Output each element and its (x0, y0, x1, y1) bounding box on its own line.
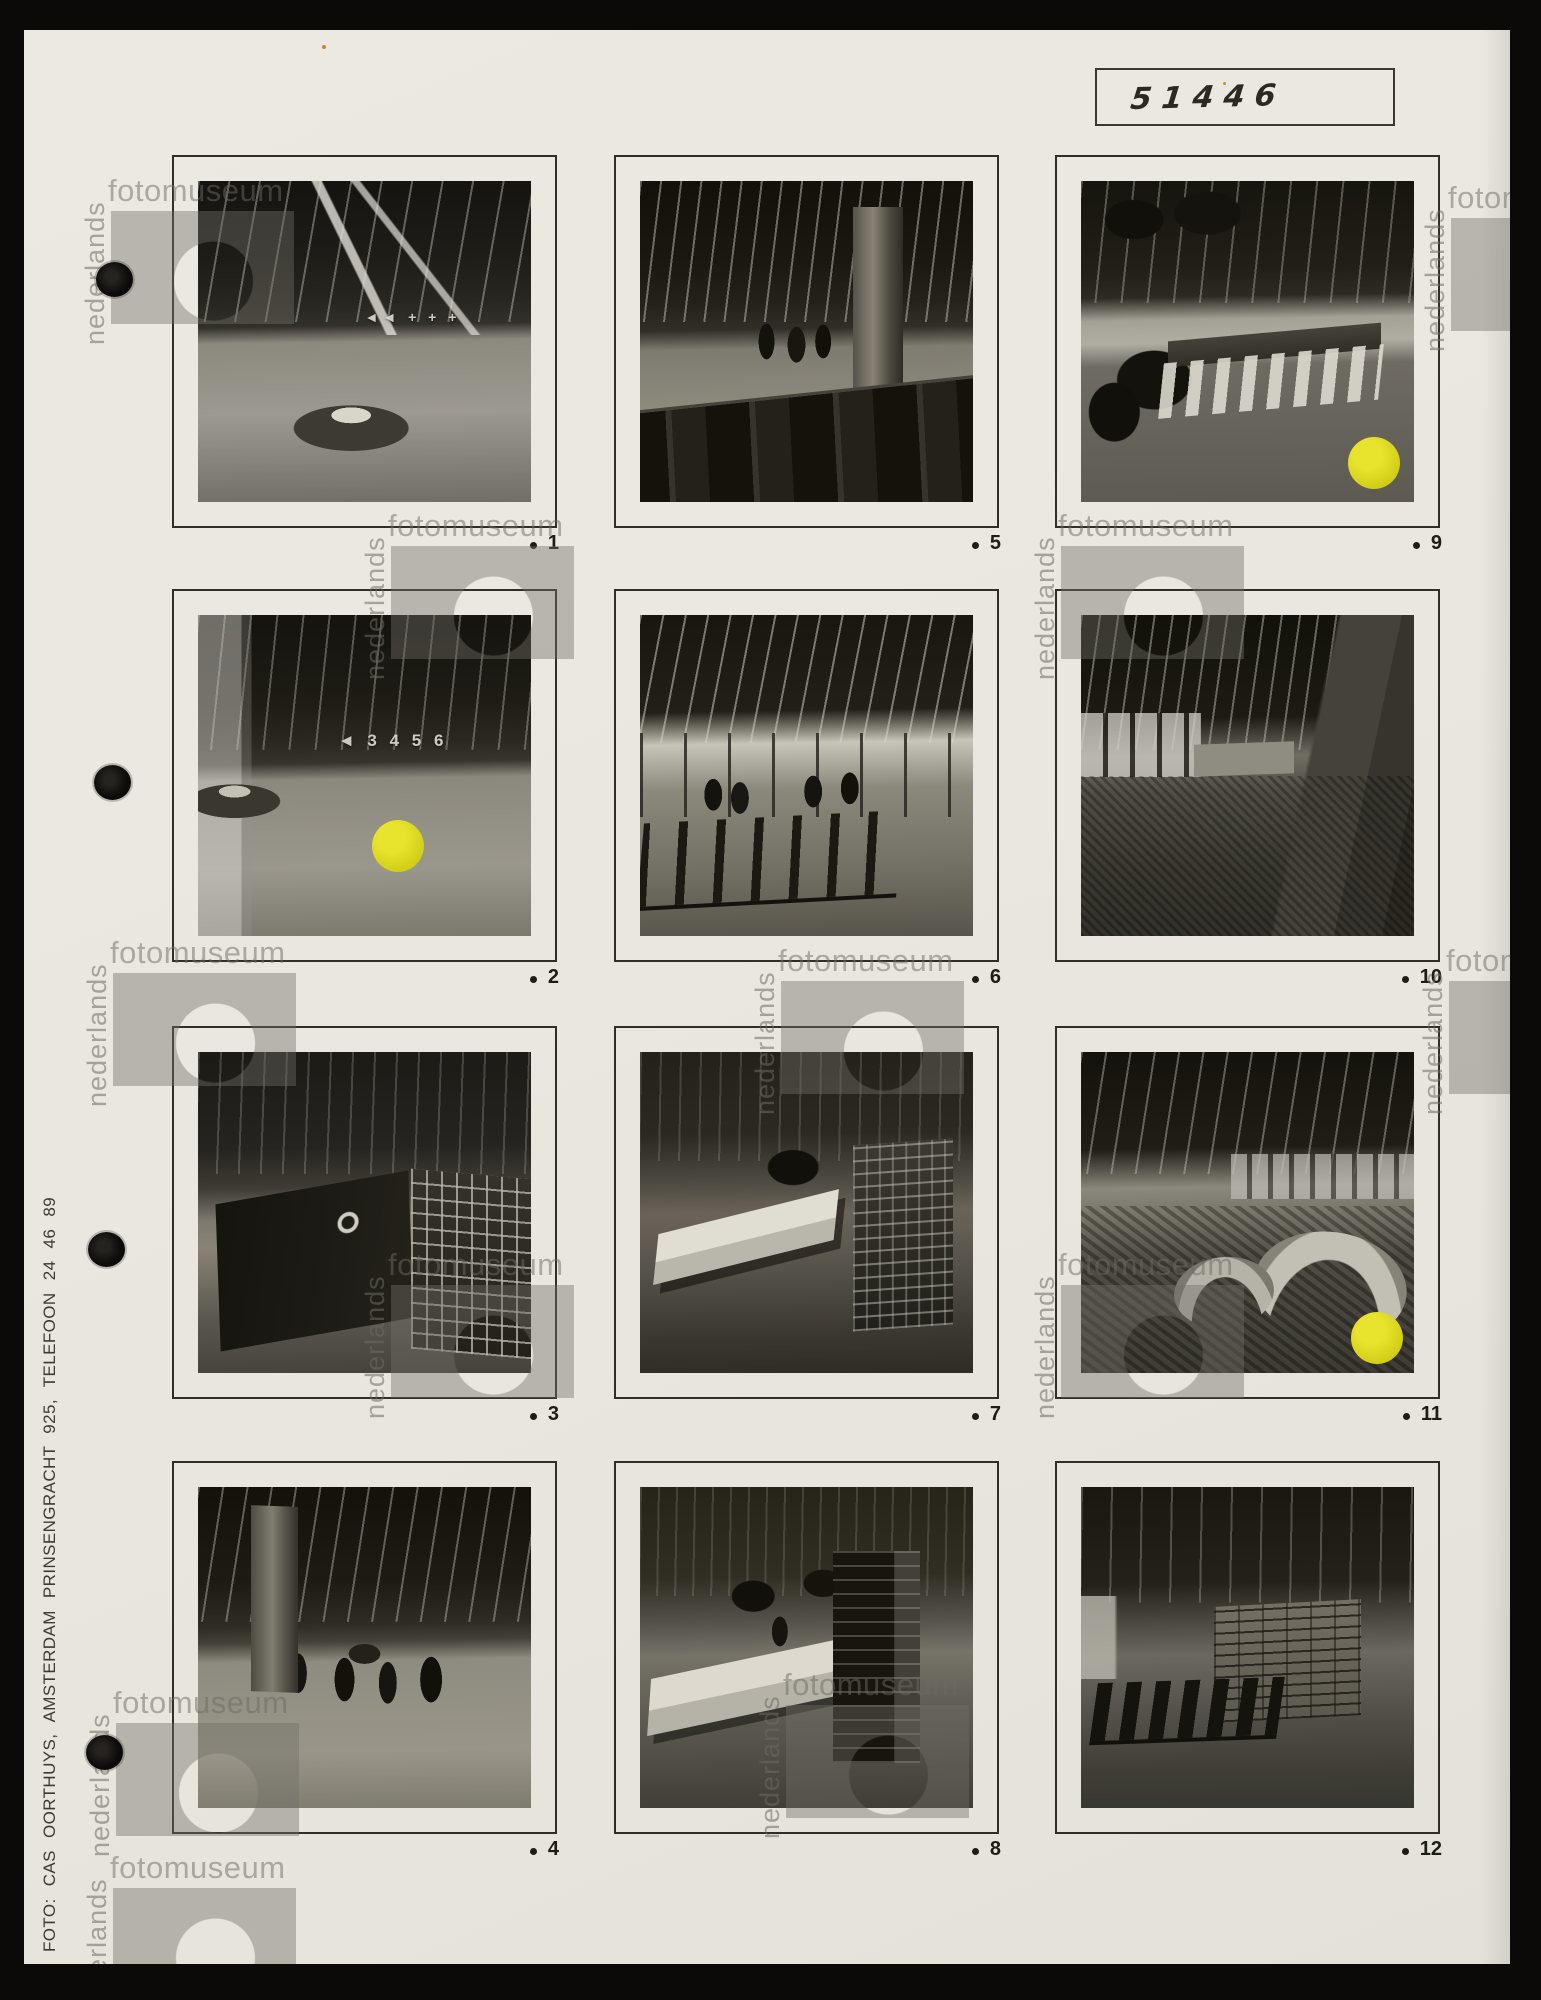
photo-number: 4 (548, 1838, 559, 1861)
photo-scene-shape (833, 1551, 920, 1763)
label-bullet (530, 1848, 537, 1855)
fotomuseum-logo-icon (1451, 218, 1510, 331)
catalog-number-box: 51446 (1095, 68, 1395, 126)
photo-number: 1 (548, 532, 559, 555)
photo-print-11 (1081, 1052, 1414, 1373)
photo-scene-shape (853, 207, 903, 412)
photo-scene-shape (653, 1189, 839, 1285)
photo-frame-11: 11 (1055, 1026, 1440, 1399)
photo-scene-shape (853, 1138, 953, 1331)
photo-number: 12 (1420, 1838, 1442, 1861)
photo-frame-9: 9 (1055, 155, 1440, 528)
photo-number: 2 (548, 966, 559, 989)
photo-number-label: 6 (972, 966, 1001, 989)
signage-wall-text: ◄ 3 4 5 6 (338, 731, 448, 751)
photo-frame-1: ◄◄ + + +1 (172, 155, 557, 528)
photo-number-label: 4 (530, 1838, 559, 1861)
photo-scene-shape (411, 1169, 531, 1359)
photographer-credit: FOTO: CAS OORTHUYS, AMSTERDAM PRINSENGRA… (40, 1212, 60, 1952)
photo-print-10 (1081, 615, 1414, 936)
punch-hole (94, 765, 131, 800)
photo-print-12 (1081, 1487, 1414, 1808)
photo-number-label: 10 (1402, 966, 1442, 989)
photo-scene-shape (215, 1170, 413, 1351)
photo-number: 7 (990, 1403, 1001, 1426)
label-bullet (1403, 1413, 1410, 1420)
photo-print-7 (640, 1052, 973, 1373)
photo-number: 6 (990, 966, 1001, 989)
dust-speck (322, 45, 326, 49)
photo-scene-shape (640, 374, 973, 502)
photo-print-8 (640, 1487, 973, 1808)
photo-number: 3 (548, 1403, 559, 1426)
photo-number: 9 (1431, 532, 1442, 555)
watermark-text-horizontal: fotomuseum (1448, 180, 1510, 216)
photo-scene-shape (1089, 1676, 1285, 1744)
label-bullet (530, 542, 537, 549)
photo-number-label: 11 (1403, 1403, 1442, 1426)
photo-number: 5 (990, 532, 1001, 555)
label-bullet (972, 1848, 979, 1855)
photo-frame-5: 5 (614, 155, 999, 528)
fotomuseum-logo-icon (1449, 981, 1510, 1094)
label-bullet (972, 976, 979, 983)
catalog-number-handwritten: 51446 (1129, 77, 1288, 116)
photo-scene-shape (640, 810, 903, 912)
label-bullet (972, 542, 979, 549)
yellow-dot-sticker (372, 820, 424, 872)
photo-number-label: 8 (972, 1838, 1001, 1861)
label-bullet (530, 976, 537, 983)
photo-frame-12: 12 (1055, 1461, 1440, 1834)
photo-number-label: 7 (972, 1403, 1001, 1426)
photo-print-1: ◄◄ + + + (198, 181, 531, 502)
yellow-dot-sticker (1351, 1312, 1403, 1364)
photo-frame-6: 6 (614, 589, 999, 962)
label-bullet (1413, 542, 1420, 549)
photo-scene-shape (251, 1505, 298, 1693)
label-bullet (1402, 976, 1409, 983)
punch-hole (96, 262, 133, 297)
photo-frame-10: 10 (1055, 589, 1440, 962)
photo-number-label: 2 (530, 966, 559, 989)
label-bullet (972, 1413, 979, 1420)
photo-number-label: 9 (1413, 532, 1442, 555)
photo-frame-3: 3 (172, 1026, 557, 1399)
watermark-text-vertical: nederlands (82, 963, 113, 1107)
label-bullet (1402, 1848, 1409, 1855)
photo-print-4 (198, 1487, 531, 1808)
punch-hole (86, 1735, 123, 1770)
yellow-dot-sticker (1348, 437, 1400, 489)
photo-scene-shape (647, 1639, 840, 1736)
photo-print-5 (640, 181, 973, 502)
photo-number-label: 5 (972, 532, 1001, 555)
watermark-text-horizontal: fotomuseum (110, 1850, 286, 1886)
photo-print-3 (198, 1052, 531, 1373)
photo-frame-2: ◄ 3 4 5 62 (172, 589, 557, 962)
photo-number-label: 3 (530, 1403, 559, 1426)
photo-frame-4: 4 (172, 1461, 557, 1834)
photo-number: 10 (1420, 966, 1442, 989)
signage-wall-text: ◄◄ + + + (365, 309, 461, 325)
label-bullet (530, 1413, 537, 1420)
photo-scene-shape (1194, 742, 1294, 778)
photo-print-2: ◄ 3 4 5 6 (198, 615, 531, 936)
fotomuseum-logo-icon (113, 1888, 296, 1964)
photo-frame-7: 7 (614, 1026, 999, 1399)
photo-print-9 (1081, 181, 1414, 502)
photo-number-label: 12 (1402, 1838, 1442, 1861)
punch-hole (88, 1232, 125, 1267)
dust-speck (1223, 82, 1226, 85)
contact-sheet-paper: 51446 FOTO: CAS OORTHUYS, AMSTERDAM PRIN… (24, 30, 1510, 1964)
photo-frame-8: 8 (614, 1461, 999, 1834)
watermark-text-horizontal: fotomuseum (1446, 943, 1510, 979)
photo-print-6 (640, 615, 973, 936)
photo-number-label: 1 (530, 532, 559, 555)
watermark-tile: nederlandsfotomuseum (82, 1855, 352, 1964)
photo-number: 11 (1421, 1403, 1442, 1426)
watermark-text-vertical: nederlands (82, 1878, 113, 1964)
photo-number: 8 (990, 1838, 1001, 1861)
